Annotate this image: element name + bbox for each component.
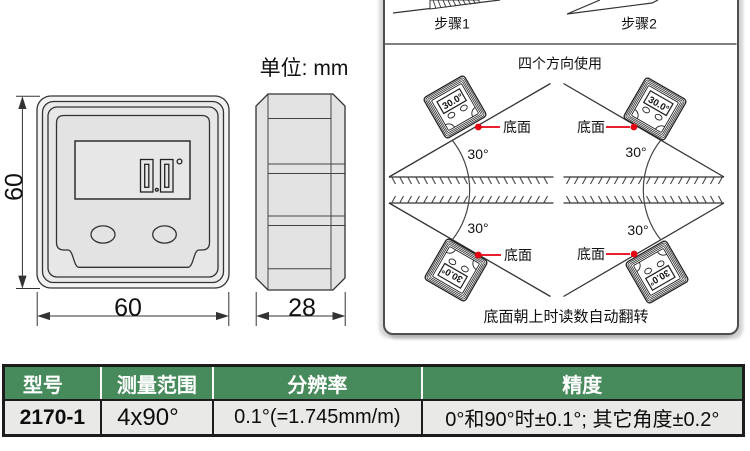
svg-text:底面: 底面 (503, 119, 531, 135)
svg-text:30°: 30° (627, 222, 648, 238)
svg-text:底面: 底面 (577, 246, 605, 262)
svg-text:单位: mm: 单位: mm (260, 57, 349, 80)
svg-text:步骤1: 步骤1 (434, 16, 470, 32)
svg-text:底面朝上时读数自动翻转: 底面朝上时读数自动翻转 (483, 309, 648, 326)
svg-text:60: 60 (114, 294, 142, 322)
svg-text:步骤2: 步骤2 (621, 16, 657, 32)
svg-text:30°: 30° (467, 146, 488, 162)
svg-text:30°: 30° (467, 220, 488, 236)
svg-text:28: 28 (288, 294, 316, 322)
svg-text:底面: 底面 (577, 119, 605, 135)
svg-text:30°: 30° (625, 144, 646, 160)
svg-text:底面: 底面 (504, 247, 532, 263)
svg-text:四个方向使用: 四个方向使用 (518, 56, 602, 72)
svg-text:60: 60 (1, 173, 29, 201)
